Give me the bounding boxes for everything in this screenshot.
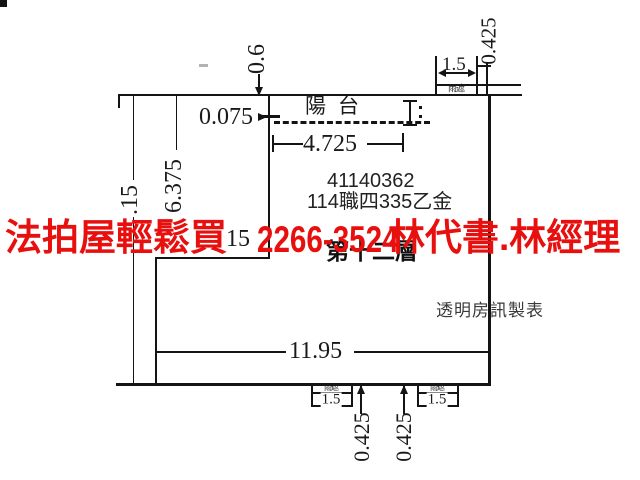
column-symbol xyxy=(409,100,411,126)
wall-left-lower xyxy=(155,257,157,385)
column-symbol-dot xyxy=(419,106,422,109)
column-symbol-bottom xyxy=(403,124,417,126)
dim-4725-line-left xyxy=(273,143,303,145)
canopy-br-left-edge xyxy=(417,383,419,407)
canopy-bl-right-edge xyxy=(351,383,353,407)
case-number: 41140362 xyxy=(327,171,415,191)
dim-canopy-br-depth: 0.425 xyxy=(393,412,415,462)
dim-06-shaft xyxy=(258,74,260,88)
dim-balcony-width: 4.725 xyxy=(303,132,357,156)
dim-bottom-width: 11.95 xyxy=(289,339,342,363)
canopy-top-ext-tick xyxy=(477,65,491,67)
arrow-up-icon xyxy=(357,385,365,394)
dim-4725-tick-right xyxy=(402,133,404,152)
case-reference: 114職四335乙金 xyxy=(307,192,452,212)
column-symbol-dot xyxy=(419,115,422,118)
dim-1195-line-right xyxy=(354,351,489,353)
canopy-top-label: 雨遮 xyxy=(448,85,464,94)
column-symbol-top xyxy=(403,100,417,102)
canopy-br-right-edge xyxy=(457,383,459,407)
dim-1195-line-left xyxy=(156,351,286,353)
arrow-right-icon xyxy=(468,69,476,77)
extension-line-6375 xyxy=(176,94,177,150)
dim-canopy-bl-depth: 0.425 xyxy=(351,412,373,462)
dim-4725-tick-left xyxy=(272,135,274,152)
dim-canopy-bl-width: 1.5 xyxy=(321,393,342,408)
dim-4725-line-right xyxy=(367,143,404,145)
dim-mid-partial: 15 xyxy=(226,227,250,251)
canopy-top-left-edge xyxy=(435,56,437,95)
top-left-tick xyxy=(118,94,120,108)
dim-left-total: .15 xyxy=(118,183,142,217)
dim-canopy-top-depth: 0.425 xyxy=(479,17,500,64)
ad-overlay-text-left: 法拍屋輕鬆買 xyxy=(5,219,227,256)
canopy-bl-left-edge xyxy=(311,383,313,407)
dim-wall-inset: 0.075 xyxy=(199,105,253,129)
dim-cross-tick xyxy=(261,115,280,118)
dim-left-upper: 6.375 xyxy=(162,157,186,215)
maker-watermark: 透明房訊製表 xyxy=(436,302,544,319)
ad-overlay-text-right: 林代書.林經理 xyxy=(388,219,620,256)
ad-overlay-phone: 2266-3524 xyxy=(257,221,399,258)
floorplan-image: 陽台 4.725 0.075 0.6 1.5 雨遮 0.425 41140362… xyxy=(0,0,640,480)
balcony-label: 陽台 xyxy=(305,96,371,117)
arrow-down-icon xyxy=(255,87,263,96)
scan-speck xyxy=(199,64,208,67)
dim-canopy-top-width: 1.5 xyxy=(442,55,466,74)
corner-artifact xyxy=(0,0,7,7)
extension-line-left-a xyxy=(133,94,134,180)
dim-canopy-br-width: 1.5 xyxy=(427,393,448,408)
arrow-up-icon xyxy=(400,385,408,394)
dim-top-offset: 0.6 xyxy=(245,44,269,74)
